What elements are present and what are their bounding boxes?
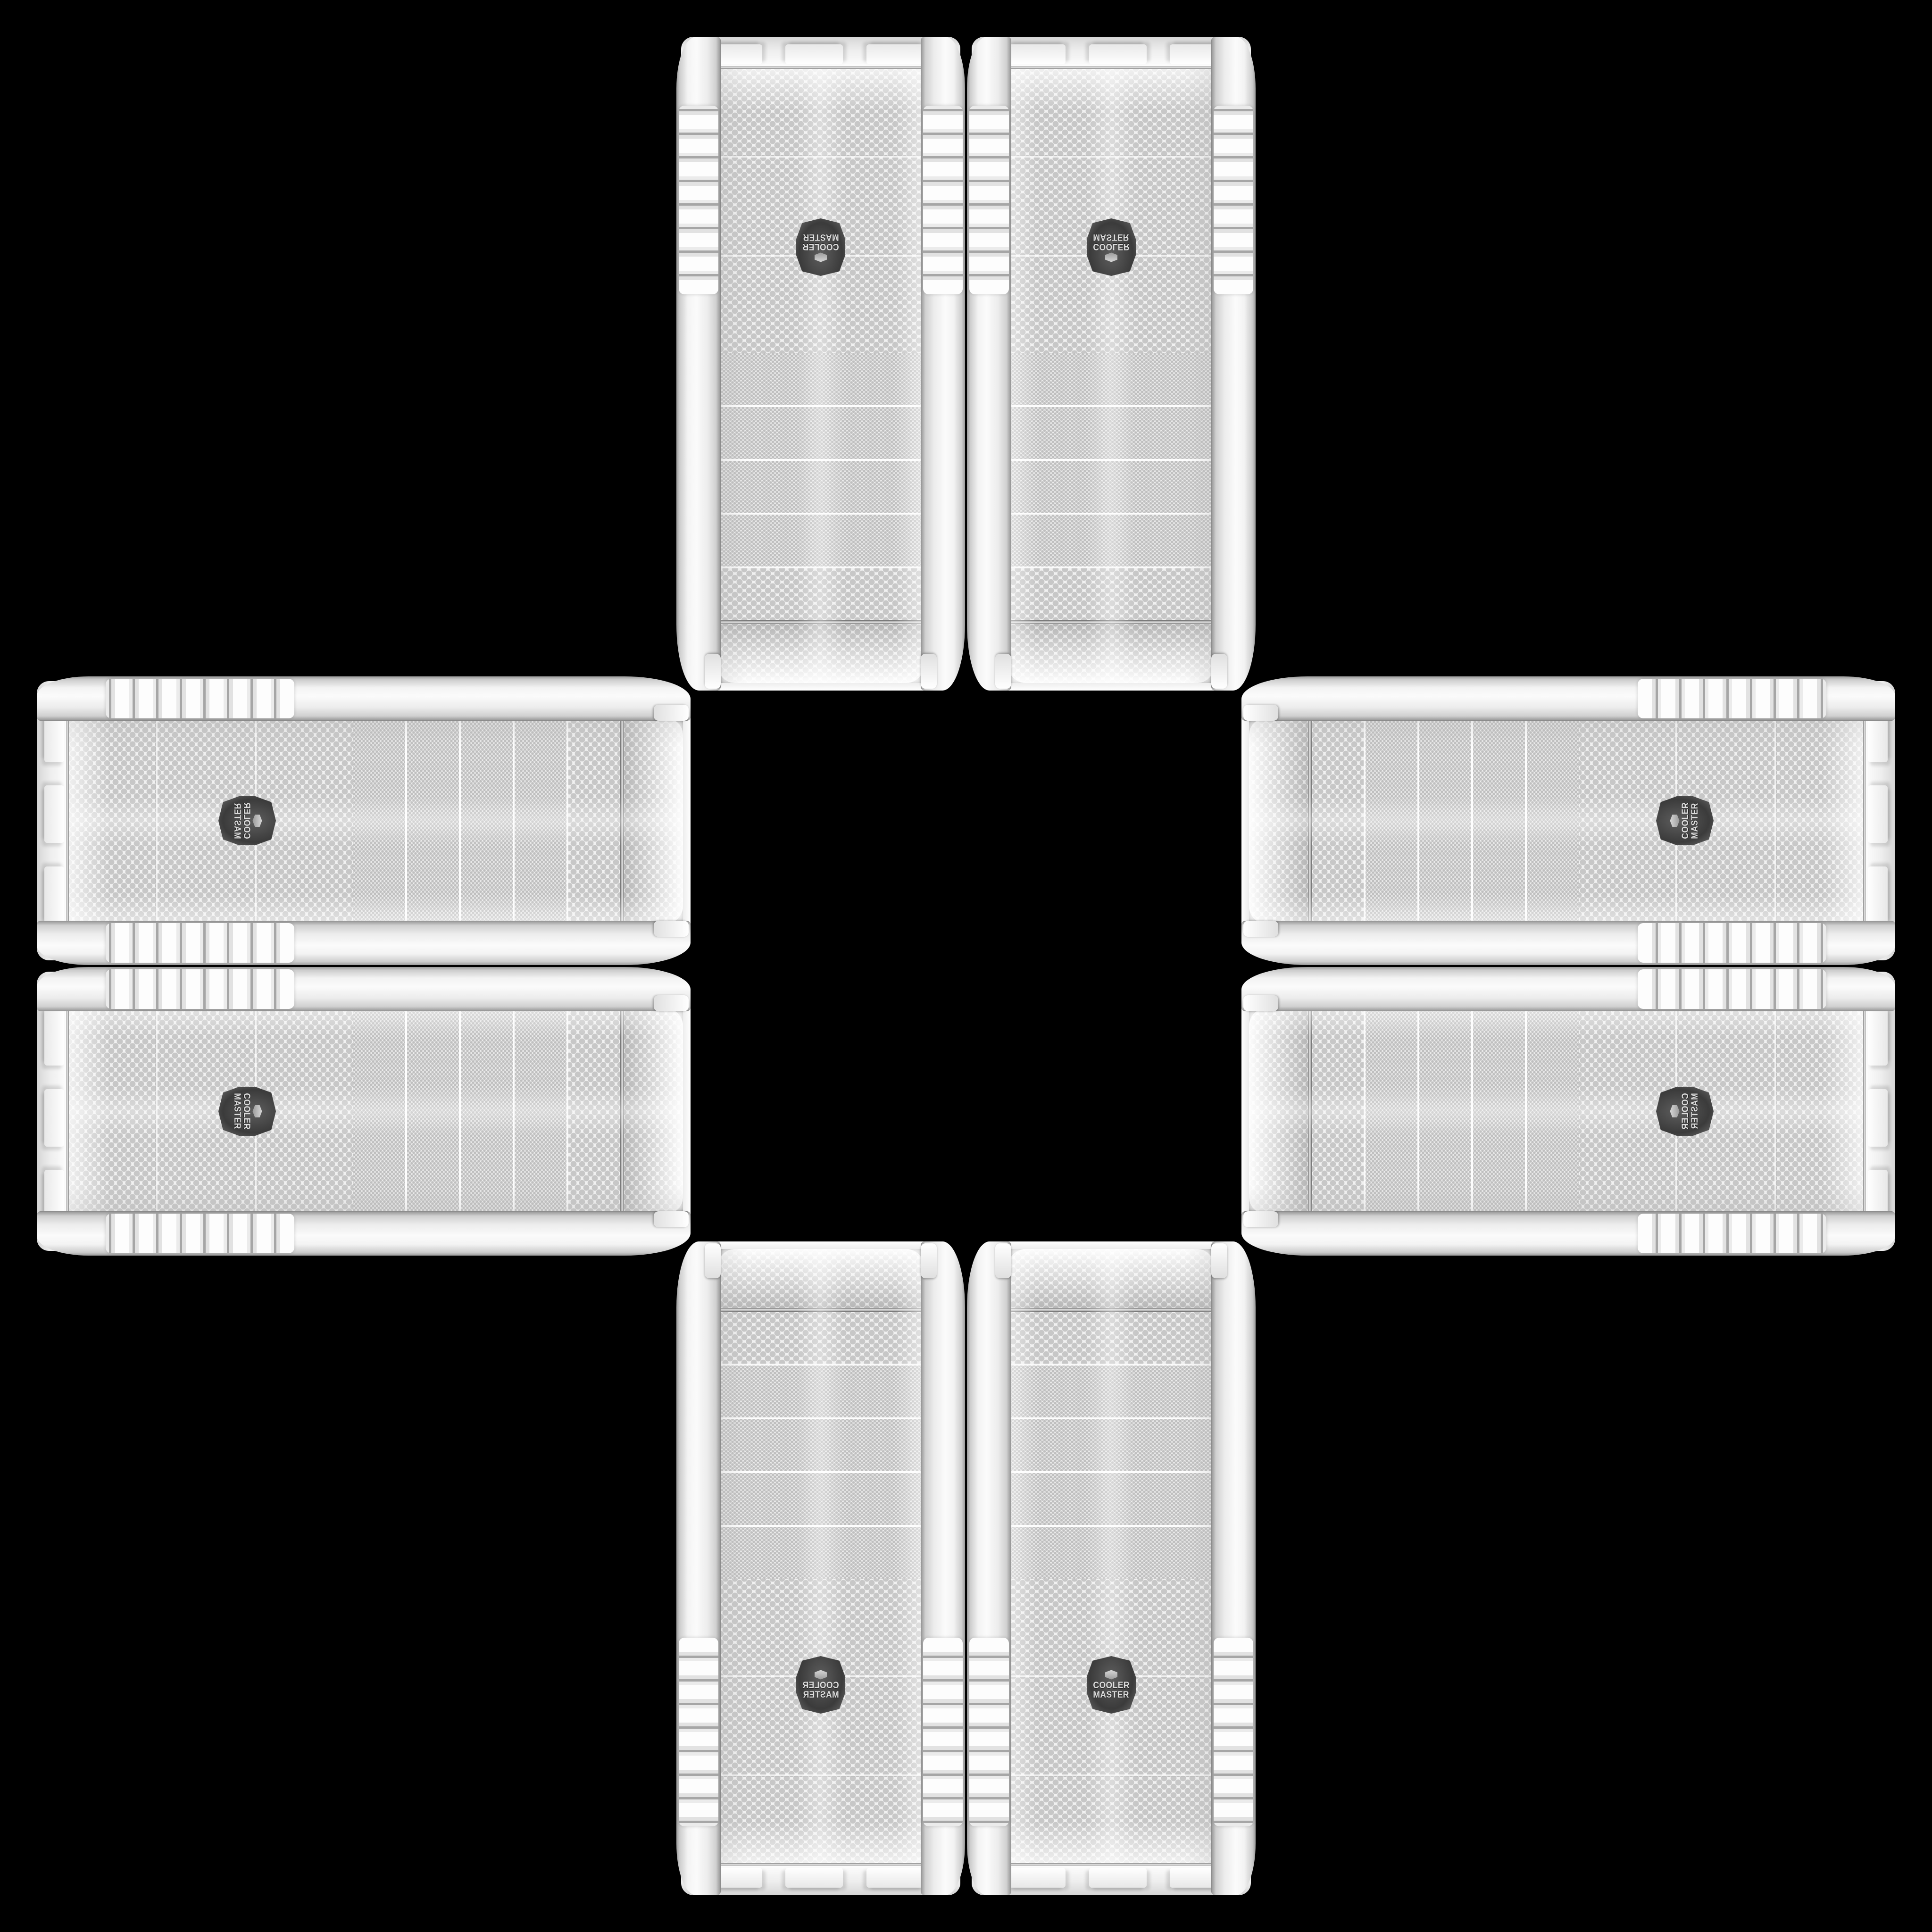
cooler-master-logo-icon: [815, 253, 827, 262]
mesh-top-curve: [718, 1249, 924, 1308]
bay-seam: [1008, 513, 1214, 515]
chrome-trim-top: [620, 1008, 624, 1214]
mesh-lower-section: [718, 1579, 924, 1864]
mesh-lower-section: [68, 1008, 353, 1214]
drive-bay-cover: [353, 1008, 405, 1214]
cap-bump: [1868, 785, 1888, 843]
rail-ribbed-grip: [106, 679, 294, 718]
mesh-front: COOLER MASTER: [1249, 718, 1864, 924]
chrome-trim-top: [718, 1308, 924, 1312]
bay-seam: [566, 1008, 568, 1214]
cooler-master-logo-icon: [1105, 1670, 1117, 1680]
panel-right-rail: [37, 1211, 691, 1256]
drive-bay-cover: [1366, 1008, 1417, 1214]
chrome-trim-top: [1008, 620, 1214, 624]
case-panel-right-bottom: COOLER MASTER: [1241, 967, 1895, 1256]
mesh-highlight: [1008, 68, 1214, 110]
brand-line-1: COOLER: [1681, 1093, 1690, 1130]
drive-bay-cover: [718, 1527, 924, 1579]
rail-ribbed-grip: [969, 1638, 1009, 1826]
drive-bay-cover: [718, 515, 924, 566]
rail-ribbed-grip: [1638, 1214, 1826, 1253]
case-panel-left-bottom: COOLER MASTER: [37, 967, 691, 1256]
mesh-front: COOLER MASTER: [68, 718, 683, 924]
mesh-seam: [156, 718, 158, 924]
mesh-front: COOLER MASTER: [1249, 1008, 1864, 1214]
drive-bay-cover: [1008, 461, 1214, 513]
chrome-trim-top: [620, 718, 624, 924]
cap-bump: [44, 1008, 64, 1066]
mesh-lower-section: [718, 68, 924, 353]
drive-bay-cover: [718, 1473, 924, 1525]
cooler-master-badge: COOLER MASTER: [218, 1087, 276, 1136]
mesh-highlight: [718, 68, 924, 110]
rail-top-tab: [921, 654, 937, 689]
brand-line-2: MASTER: [1093, 233, 1130, 242]
mesh-seam: [1008, 1774, 1214, 1776]
cap-bump: [785, 1868, 843, 1888]
drive-bay-cover: [1473, 718, 1525, 924]
drive-bay-cover: [1527, 718, 1579, 924]
drive-bay-cover: [515, 1008, 566, 1214]
mesh-top-curve: [718, 624, 924, 683]
drive-bay-cover: [1008, 515, 1214, 566]
panel-bottom-cap: [1866, 972, 1895, 1251]
panel-left-rail: [1241, 921, 1895, 965]
rail-ribbed-grip: [106, 923, 294, 963]
drive-bay-cover: [1419, 718, 1471, 924]
panel-right-rail: [1211, 1241, 1256, 1895]
rail-ribbed-grip: [679, 1638, 718, 1826]
brand-line-1: COOLER: [1681, 802, 1690, 839]
product-collage: COOLER MASTER: [0, 0, 1932, 1932]
brand-line-1: COOLER: [1093, 242, 1130, 251]
panel-rotor: COOLER MASTER: [676, 1241, 965, 1895]
drive-bay-cover: [407, 718, 459, 924]
cap-bump: [1008, 44, 1066, 64]
drive-bay-cover: [718, 1312, 924, 1365]
case-front-panel: COOLER MASTER: [37, 676, 691, 965]
rail-ribbed-grip: [106, 1214, 294, 1253]
rail-ribbed-grip: [923, 1638, 963, 1826]
cap-bump: [1868, 1008, 1888, 1066]
mesh-top-curve: [1249, 718, 1308, 924]
drive-bay-cover: [1008, 1527, 1214, 1579]
brand-line-1: COOLER: [802, 1681, 839, 1690]
cooler-master-badge: COOLER MASTER: [796, 218, 845, 276]
mesh-highlight: [68, 1008, 110, 1214]
case-front-panel: COOLER MASTER: [676, 1241, 965, 1895]
panel-right-rail: [676, 1241, 721, 1895]
cap-bump: [44, 866, 64, 924]
mesh-top-curve: [1008, 1249, 1214, 1308]
rail-ribbed-grip: [923, 106, 963, 294]
cooler-master-badge: COOLER MASTER: [1087, 1656, 1136, 1714]
mesh-front: COOLER MASTER: [718, 68, 924, 683]
mesh-front: COOLER MASTER: [718, 1249, 924, 1864]
drive-bay-cover: [718, 1366, 924, 1417]
bay-seam: [718, 513, 924, 515]
brand-line-2: MASTER: [1690, 1093, 1700, 1130]
rail-top-tab: [995, 1243, 1011, 1278]
brand-line-2: MASTER: [233, 1093, 242, 1130]
drive-bay-cover: [1312, 1008, 1365, 1214]
drive-bay-cover: [1008, 353, 1214, 405]
case-panel-bottom-right: COOLER MASTER: [967, 1241, 1256, 1895]
case-panel-top-right: COOLER MASTER: [967, 37, 1256, 691]
chrome-trim-top: [1308, 718, 1312, 924]
cap-bump: [1089, 44, 1147, 64]
mesh-top-curve: [1008, 624, 1214, 683]
cooler-master-logo-icon: [253, 1105, 262, 1117]
cap-bump: [1868, 866, 1888, 924]
mesh-highlight: [68, 718, 110, 924]
drive-bay-cover: [1008, 1312, 1214, 1365]
panel-rotor: COOLER MASTER: [1241, 676, 1895, 965]
rail-top-tab: [1243, 705, 1278, 721]
case-front-panel: COOLER MASTER: [1241, 967, 1895, 1256]
mesh-seam: [718, 156, 924, 158]
case-panel-left-top: COOLER MASTER: [37, 676, 691, 965]
mesh-highlight: [1822, 718, 1864, 924]
mesh-front: COOLER MASTER: [68, 1008, 683, 1214]
case-panel-bottom-left: COOLER MASTER: [676, 1241, 965, 1895]
brand-line-2: MASTER: [803, 1690, 839, 1700]
panel-rotor: COOLER MASTER: [967, 37, 1256, 691]
panel-left-rail: [37, 921, 691, 965]
drive-bay-cover: [1366, 718, 1417, 924]
mesh-highlight: [1008, 1822, 1214, 1864]
panel-bottom-cap: [972, 1866, 1251, 1895]
cooler-master-logo-icon: [1670, 1105, 1680, 1117]
panel-rotor: COOLER MASTER: [967, 1241, 1256, 1895]
panel-right-rail: [676, 37, 721, 691]
drive-bay-cover: [515, 718, 566, 924]
panel-bottom-cap: [972, 37, 1251, 66]
bay-seam: [459, 718, 461, 924]
rail-ribbed-grip: [969, 106, 1009, 294]
bay-seam: [718, 459, 924, 461]
rail-top-tab: [1243, 995, 1278, 1011]
panel-left-rail: [1241, 967, 1895, 1011]
rail-top-tab: [654, 705, 689, 721]
bay-seam: [513, 718, 515, 924]
rail-top-tab: [654, 1211, 689, 1227]
panel-bottom-cap: [37, 681, 66, 960]
cap-bump: [44, 1089, 64, 1147]
mesh-seam: [156, 1008, 158, 1214]
panel-rotor: COOLER MASTER: [37, 967, 691, 1256]
rail-top-tab: [1211, 1243, 1227, 1278]
drive-bay-cover: [1008, 1366, 1214, 1417]
panel-rotor: COOLER MASTER: [37, 676, 691, 965]
rail-ribbed-grip: [106, 969, 294, 1009]
bay-seam: [459, 1008, 461, 1214]
mesh-seam: [1008, 156, 1214, 158]
mesh-front: COOLER MASTER: [1008, 1249, 1214, 1864]
panel-left-rail: [921, 37, 965, 691]
rail-top-tab: [705, 1243, 721, 1278]
brand-line-1: COOLER: [802, 242, 839, 251]
case-panel-right-top: COOLER MASTER: [1241, 676, 1895, 965]
mesh-lower-section: [1008, 68, 1214, 353]
mesh-front: COOLER MASTER: [1008, 68, 1214, 683]
brand-line-1: COOLER: [242, 1093, 251, 1130]
bay-seam: [566, 718, 568, 924]
chrome-trim-top: [1308, 1008, 1312, 1214]
panel-rotor: COOLER MASTER: [1241, 967, 1895, 1256]
rail-top-tab: [654, 921, 689, 937]
drive-bay-cover: [1527, 1008, 1579, 1214]
rail-ribbed-grip: [1638, 923, 1826, 963]
bay-seam: [1008, 405, 1214, 407]
bay-seam: [1008, 566, 1214, 568]
panel-rotor: COOLER MASTER: [676, 37, 965, 691]
panel-right-rail: [1211, 37, 1256, 691]
drive-bay-cover: [718, 461, 924, 513]
case-front-panel: COOLER MASTER: [967, 1241, 1256, 1895]
case-front-panel: COOLER MASTER: [676, 37, 965, 691]
drive-bay-cover: [567, 718, 620, 924]
drive-bay-cover: [1419, 1008, 1471, 1214]
drive-bay-cover: [567, 1008, 620, 1214]
panel-left-rail: [967, 37, 1011, 691]
bay-seam: [405, 718, 407, 924]
drive-bay-cover: [461, 1008, 513, 1214]
bay-seam: [513, 1008, 515, 1214]
drive-bay-cover: [718, 567, 924, 620]
drive-bay-cover: [1008, 407, 1214, 459]
rail-top-tab: [1243, 1211, 1278, 1227]
mesh-top-curve: [1249, 1008, 1308, 1214]
cap-bump: [866, 1868, 924, 1888]
panel-left-rail: [921, 1241, 965, 1895]
mesh-seam: [1774, 718, 1776, 924]
rail-ribbed-grip: [1214, 106, 1253, 294]
brand-line-2: MASTER: [1093, 1690, 1130, 1700]
drive-bay-cover: [1312, 718, 1365, 924]
rail-top-tab: [1243, 921, 1278, 937]
panel-bottom-cap: [681, 37, 960, 66]
cap-bump: [866, 44, 924, 64]
cooler-master-logo-icon: [1670, 815, 1680, 827]
rail-top-tab: [1211, 654, 1227, 689]
rail-top-tab: [995, 654, 1011, 689]
panel-bottom-cap: [37, 972, 66, 1251]
panel-right-rail: [37, 676, 691, 721]
mesh-seam: [1774, 1008, 1776, 1214]
drive-bay-cover: [461, 718, 513, 924]
rail-ribbed-grip: [1638, 679, 1826, 718]
brand-line-2: MASTER: [233, 803, 242, 839]
rail-ribbed-grip: [1214, 1638, 1253, 1826]
case-front-panel: COOLER MASTER: [37, 967, 691, 1256]
rail-top-tab: [921, 1243, 937, 1278]
brand-line-2: MASTER: [803, 233, 839, 242]
cooler-master-logo-icon: [253, 815, 262, 827]
mesh-top-curve: [624, 1008, 683, 1214]
brand-line-1: COOLER: [242, 802, 251, 839]
panel-left-rail: [37, 967, 691, 1011]
mesh-highlight: [1822, 1008, 1864, 1214]
cap-bump: [44, 785, 64, 843]
case-panel-top-left: COOLER MASTER: [676, 37, 965, 691]
cooler-master-badge: COOLER MASTER: [1656, 1087, 1714, 1136]
mesh-top-curve: [624, 718, 683, 924]
chrome-trim-top: [718, 620, 924, 624]
cooler-master-logo-icon: [815, 1670, 827, 1680]
bay-seam: [1008, 459, 1214, 461]
cooler-master-logo-icon: [1105, 253, 1117, 262]
cooler-master-badge: COOLER MASTER: [218, 796, 276, 845]
bay-seam: [718, 566, 924, 568]
bay-seam: [718, 405, 924, 407]
panel-left-rail: [967, 1241, 1011, 1895]
rail-top-tab: [654, 995, 689, 1011]
drive-bay-cover: [407, 1008, 459, 1214]
rail-ribbed-grip: [679, 106, 718, 294]
cap-bump: [1868, 1089, 1888, 1147]
drive-bay-cover: [718, 1419, 924, 1471]
panel-right-rail: [1241, 1211, 1895, 1256]
mesh-highlight: [718, 1822, 924, 1864]
rail-ribbed-grip: [1638, 969, 1826, 1009]
panel-bottom-cap: [681, 1866, 960, 1895]
brand-line-2: MASTER: [1690, 803, 1700, 839]
rail-top-tab: [705, 654, 721, 689]
cooler-master-badge: COOLER MASTER: [796, 1656, 845, 1714]
drive-bay-cover: [1008, 1419, 1214, 1471]
drive-bay-cover: [1473, 1008, 1525, 1214]
mesh-lower-section: [1579, 718, 1864, 924]
drive-bay-cover: [718, 353, 924, 405]
chrome-trim-top: [1008, 1308, 1214, 1312]
drive-bay-cover: [1008, 567, 1214, 620]
mesh-lower-section: [1008, 1579, 1214, 1864]
cap-bump: [785, 44, 843, 64]
drive-bay-cover: [353, 718, 405, 924]
bay-seam: [405, 1008, 407, 1214]
panel-bottom-cap: [1866, 681, 1895, 960]
case-front-panel: COOLER MASTER: [967, 37, 1256, 691]
drive-bay-cover: [1008, 1473, 1214, 1525]
mesh-lower-section: [1579, 1008, 1864, 1214]
drive-bay-cover: [718, 407, 924, 459]
panel-right-rail: [1241, 676, 1895, 721]
mesh-lower-section: [68, 718, 353, 924]
mesh-seam: [718, 1774, 924, 1776]
cooler-master-badge: COOLER MASTER: [1087, 218, 1136, 276]
case-front-panel: COOLER MASTER: [1241, 676, 1895, 965]
brand-line-1: COOLER: [1093, 1681, 1130, 1690]
cooler-master-badge: COOLER MASTER: [1656, 796, 1714, 845]
cap-bump: [1089, 1868, 1147, 1888]
cap-bump: [1008, 1868, 1066, 1888]
